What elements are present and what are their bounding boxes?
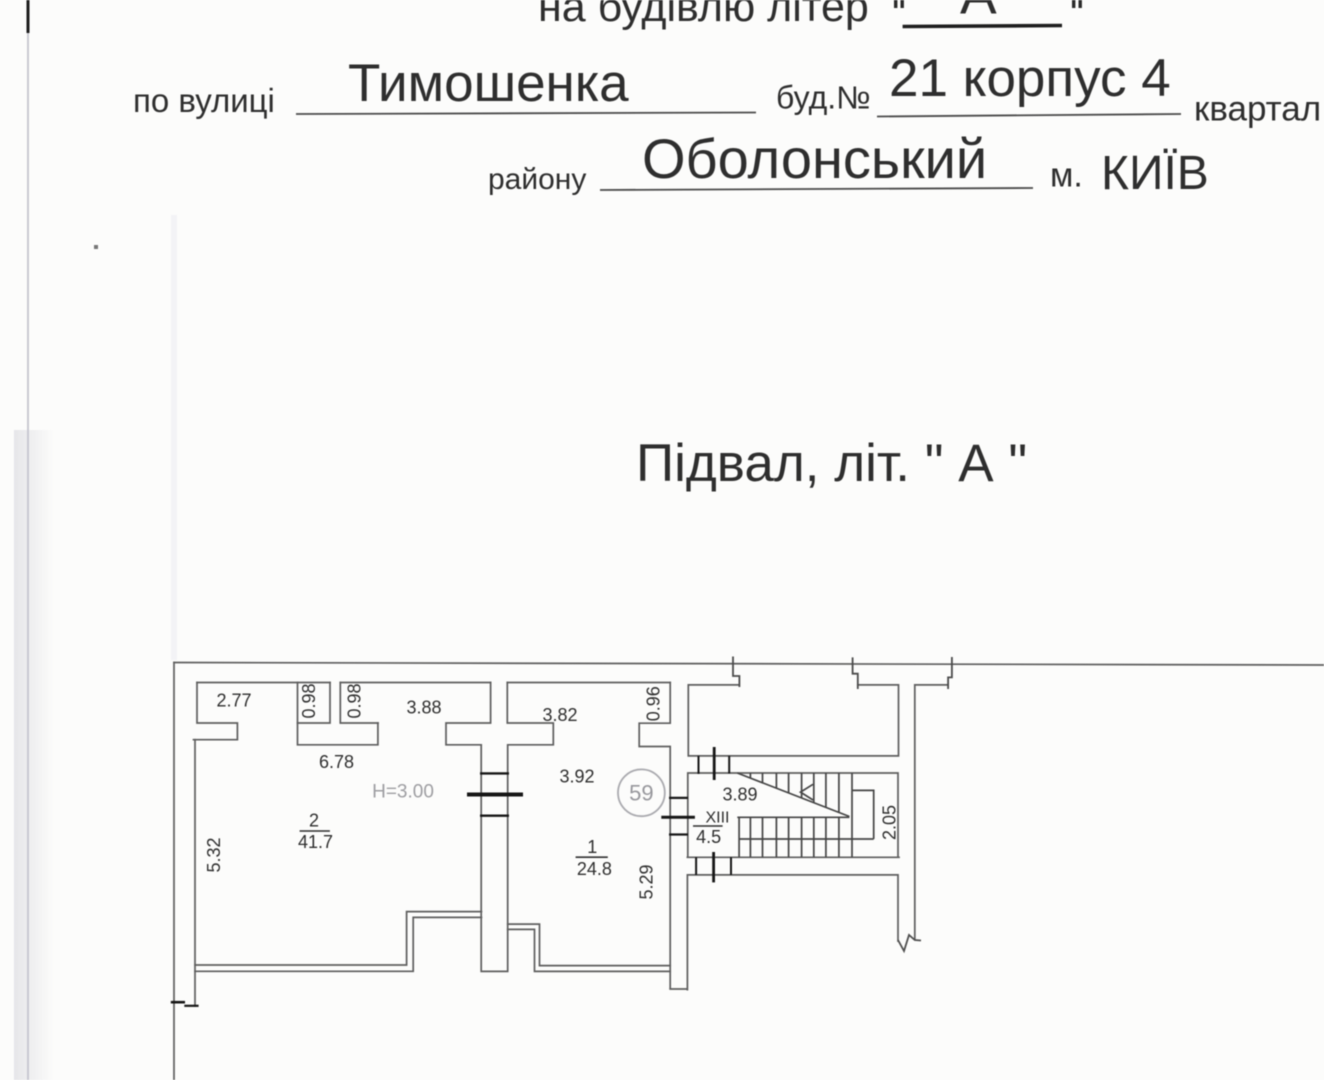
svg-text:0.98: 0.98: [299, 683, 319, 718]
svg-text:А: А: [960, 0, 997, 26]
svg-text:2: 2: [309, 811, 319, 831]
svg-text:Тимошенка: Тимошенка: [348, 54, 629, 113]
svg-text:6.78: 6.78: [319, 752, 354, 772]
svg-text:4.5: 4.5: [696, 827, 721, 847]
svg-text:5.29: 5.29: [637, 864, 657, 899]
svg-text:21 корпус 4: 21 корпус 4: [889, 49, 1171, 108]
svg-text:2.05: 2.05: [879, 805, 899, 840]
svg-text:району: району: [488, 163, 586, 196]
svg-text:по вулиці: по вулиці: [133, 82, 275, 119]
svg-text:Оболонський: Оболонський: [642, 127, 987, 190]
svg-text:H=3.00: H=3.00: [372, 781, 434, 802]
svg-text:на будівлю літер: на будівлю літер: [538, 0, 869, 31]
svg-text:буд.№: буд.№: [776, 80, 870, 116]
svg-text:2.77: 2.77: [216, 690, 251, 710]
svg-text:1: 1: [587, 837, 597, 857]
svg-text:3.88: 3.88: [406, 697, 441, 717]
svg-text:3.82: 3.82: [542, 705, 577, 725]
svg-text:24.8: 24.8: [577, 859, 612, 879]
svg-text:5.32: 5.32: [204, 837, 224, 872]
svg-text:м.: м.: [1050, 157, 1083, 195]
svg-text:3.92: 3.92: [559, 766, 594, 786]
svg-text:59: 59: [629, 780, 653, 805]
svg-text:41.7: 41.7: [298, 832, 333, 852]
svg-text:XIII: XIII: [705, 809, 729, 826]
svg-text:квартал: квартал: [1194, 90, 1321, 129]
svg-text:Підвал, літ. " А ": Підвал, літ. " А ": [636, 434, 1027, 493]
svg-text:0.96: 0.96: [643, 686, 663, 721]
svg-text:3.89: 3.89: [722, 784, 757, 804]
svg-text:КИЇВ: КИЇВ: [1101, 147, 1209, 200]
svg-text:0.98: 0.98: [345, 683, 365, 718]
